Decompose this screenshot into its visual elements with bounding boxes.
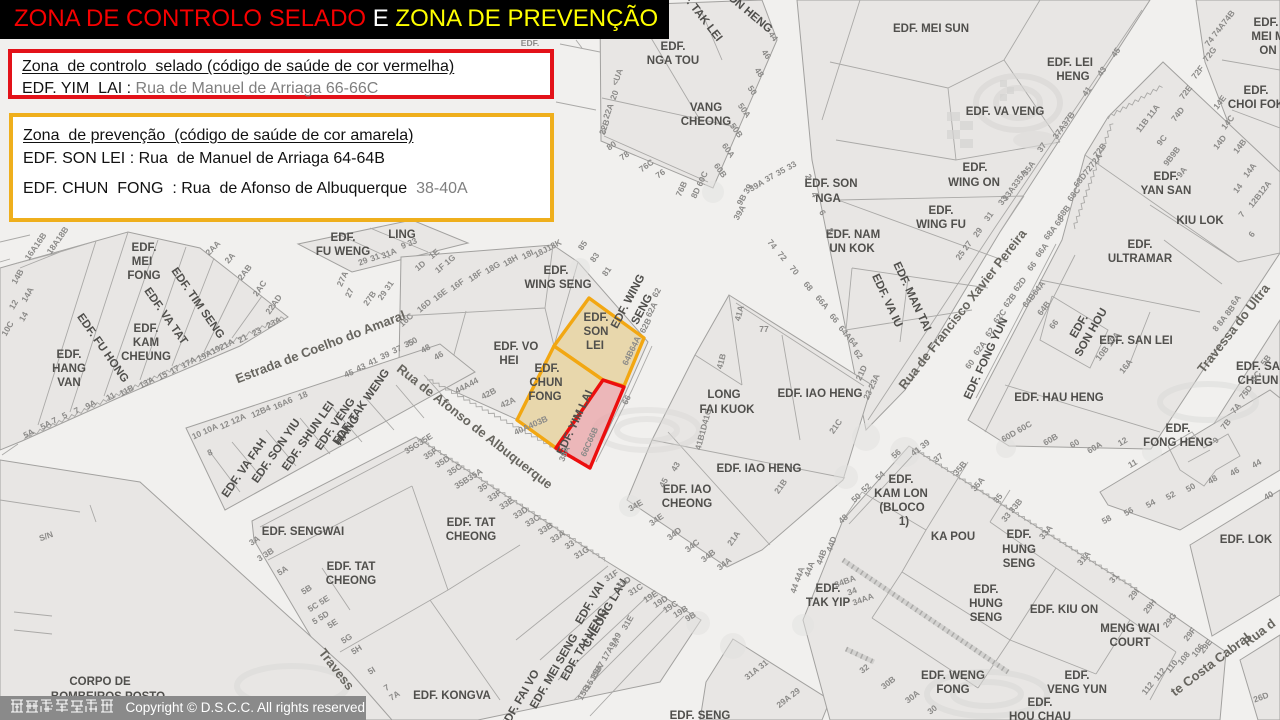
svg-text:11: 11 [1126,457,1139,470]
svg-text:HUNG: HUNG [969,598,1003,610]
svg-text:39A: 39A [731,203,747,222]
svg-text:EDF. LEI: EDF. LEI [1047,57,1093,69]
svg-text:CHEUNG: CHEUNG [121,351,171,363]
svg-text:HOU CHAU: HOU CHAU [1009,711,1071,720]
svg-text:70: 70 [787,263,801,277]
svg-text:EDF.: EDF. [1244,85,1269,97]
svg-text:CHOI FOK: CHOI FOK [1228,99,1280,111]
svg-text:EDF. WENG: EDF. WENG [921,670,985,682]
svg-text:EDF.: EDF. [134,323,159,335]
svg-text:76: 76 [654,167,668,181]
svg-text:27A: 27A [334,270,350,288]
svg-text:EDF.: EDF. [929,205,954,217]
svg-text:EDF.: EDF. [535,363,560,375]
svg-text:HENG: HENG [1056,71,1089,83]
svg-text:66: 66 [827,311,841,325]
svg-text:EDF. IAO HENG: EDF. IAO HENG [778,388,863,400]
svg-text:39: 39 [378,349,391,362]
svg-text:YAN SAN: YAN SAN [1141,185,1192,197]
svg-text:EDF.: EDF. [1166,423,1191,435]
svg-text:EDF. KONGVA: EDF. KONGVA [413,690,491,702]
svg-text:ON: ON [1259,45,1276,57]
svg-text:EDF. SON: EDF. SON [804,178,857,190]
svg-text:2AC: 2AC [251,278,269,298]
svg-text:1): 1) [899,516,909,528]
svg-text:COURT: COURT [1110,637,1151,649]
svg-text:CHUN: CHUN [529,377,562,389]
svg-text:FONG: FONG [936,684,969,696]
svg-text:33: 33 [785,159,798,173]
svg-text:CHEONG: CHEONG [326,575,377,587]
svg-text:MENG WAI: MENG WAI [1100,623,1159,635]
svg-text:EDF.: EDF. [1254,17,1279,29]
svg-text:HUNG: HUNG [1002,544,1036,556]
svg-text:EDF. IAO HENG: EDF. IAO HENG [717,463,802,475]
svg-text:81: 81 [600,264,614,278]
svg-text:EDF.: EDF. [1128,239,1153,251]
svg-text:FONG HENG: FONG HENG [1143,437,1213,449]
svg-text:83: 83 [588,250,602,264]
svg-text:EDF.: EDF. [132,242,157,254]
svg-text:VANG: VANG [690,102,722,114]
svg-text:76B: 76B [673,180,689,198]
svg-text:2AA: 2AA [203,238,222,257]
svg-text:MEI M: MEI M [1251,31,1280,43]
svg-text:2AB: 2AB [235,262,253,282]
svg-text:EDF.: EDF. [661,41,686,53]
svg-text:UN KOK: UN KOK [829,243,875,255]
svg-text:58: 58 [1100,513,1113,527]
svg-text:66: 66 [1025,259,1039,273]
svg-text:MEI: MEI [132,256,152,268]
svg-text:EDF. TAT: EDF. TAT [327,561,376,573]
svg-text:FONG: FONG [528,391,561,403]
svg-text:CHEONG: CHEONG [446,531,497,543]
svg-text:62D: 62D [1011,275,1028,293]
svg-text:HANG: HANG [52,363,86,375]
svg-text:EDF. LOK: EDF. LOK [1220,534,1273,546]
svg-text:CORPO DE: CORPO DE [69,676,131,688]
svg-text:74: 74 [765,237,779,251]
svg-text:SENG: SENG [970,612,1003,624]
svg-text:CHEONG: CHEONG [681,116,732,128]
svg-text:VENG YUN: VENG YUN [1047,684,1107,696]
svg-text:9B 39: 9B 39 [734,182,754,207]
svg-text:EDF.: EDF. [584,312,609,324]
svg-text:FONG: FONG [127,270,160,282]
svg-text:EDF.: EDF. [963,162,988,174]
svg-text:VAN: VAN [57,377,80,389]
svg-text:EDF.: EDF. [1007,529,1032,541]
svg-text:EDF.: EDF. [1028,697,1053,709]
svg-text:77: 77 [759,324,769,334]
svg-text:SON: SON [584,326,609,338]
svg-text:EDF.: EDF. [331,232,356,244]
svg-text:EDF. IAO: EDF. IAO [663,484,712,496]
svg-text:3: 3 [602,126,607,136]
svg-text:2A: 2A [222,251,237,266]
svg-text:37: 37 [763,171,776,185]
svg-text:LONG: LONG [707,389,740,401]
svg-text:EDF. VO: EDF. VO [494,341,539,353]
svg-text:EDF.: EDF. [1065,670,1090,682]
svg-text:EDF.: EDF. [544,265,569,277]
svg-text:SENG: SENG [1003,558,1036,570]
svg-text:WING ON: WING ON [948,177,1000,189]
svg-text:27: 27 [343,286,356,299]
svg-text:EDF. VA VENG: EDF. VA VENG [966,106,1045,118]
svg-text:EDF. SENGWAI: EDF. SENGWAI [262,526,344,538]
svg-text:27B: 27B [361,289,378,308]
svg-text:72F: 72F [1189,63,1206,81]
svg-text:68: 68 [801,279,815,293]
svg-text:72: 72 [775,249,789,263]
svg-text:EDF. KIU ON: EDF. KIU ON [1030,604,1098,616]
svg-text:EDF.: EDF. [57,349,82,361]
svg-text:(BLOCO: (BLOCO [879,502,924,514]
svg-text:EDF. TAT: EDF. TAT [447,517,496,529]
svg-text:WING FU: WING FU [916,219,966,231]
svg-text:EDF.: EDF. [889,474,914,486]
svg-text:KIU LOK: KIU LOK [1176,215,1224,227]
svg-text:62B: 62B [1001,291,1018,309]
svg-text:EDF.: EDF. [521,38,539,48]
svg-text:HEI: HEI [499,355,518,367]
svg-text:EDF. SENG: EDF. SENG [670,710,731,720]
svg-text:EDF. MEI SUN: EDF. MEI SUN [893,23,969,35]
svg-text:WING SENG: WING SENG [524,279,591,291]
svg-text:KA POU: KA POU [931,531,975,543]
svg-text:KAM: KAM [133,337,159,349]
svg-text:85: 85 [576,238,590,252]
svg-text:29 31: 29 31 [375,278,396,301]
svg-text:EDF.: EDF. [974,584,999,596]
svg-text:ULTRAMAR: ULTRAMAR [1108,253,1173,265]
svg-text:NGA TOU: NGA TOU [647,55,699,67]
svg-text:44 44A: 44 44A [788,565,807,594]
svg-text:KAM LON: KAM LON [874,488,928,500]
svg-text:LEI: LEI [586,340,604,352]
svg-text:CHEONG: CHEONG [662,498,713,510]
svg-text:EDF. HAU HENG: EDF. HAU HENG [1014,392,1104,404]
svg-text:66A: 66A [813,293,831,311]
svg-text:TAK YIP: TAK YIP [806,597,851,609]
svg-text:66A: 66A [1033,241,1050,259]
svg-text:35: 35 [774,165,787,179]
